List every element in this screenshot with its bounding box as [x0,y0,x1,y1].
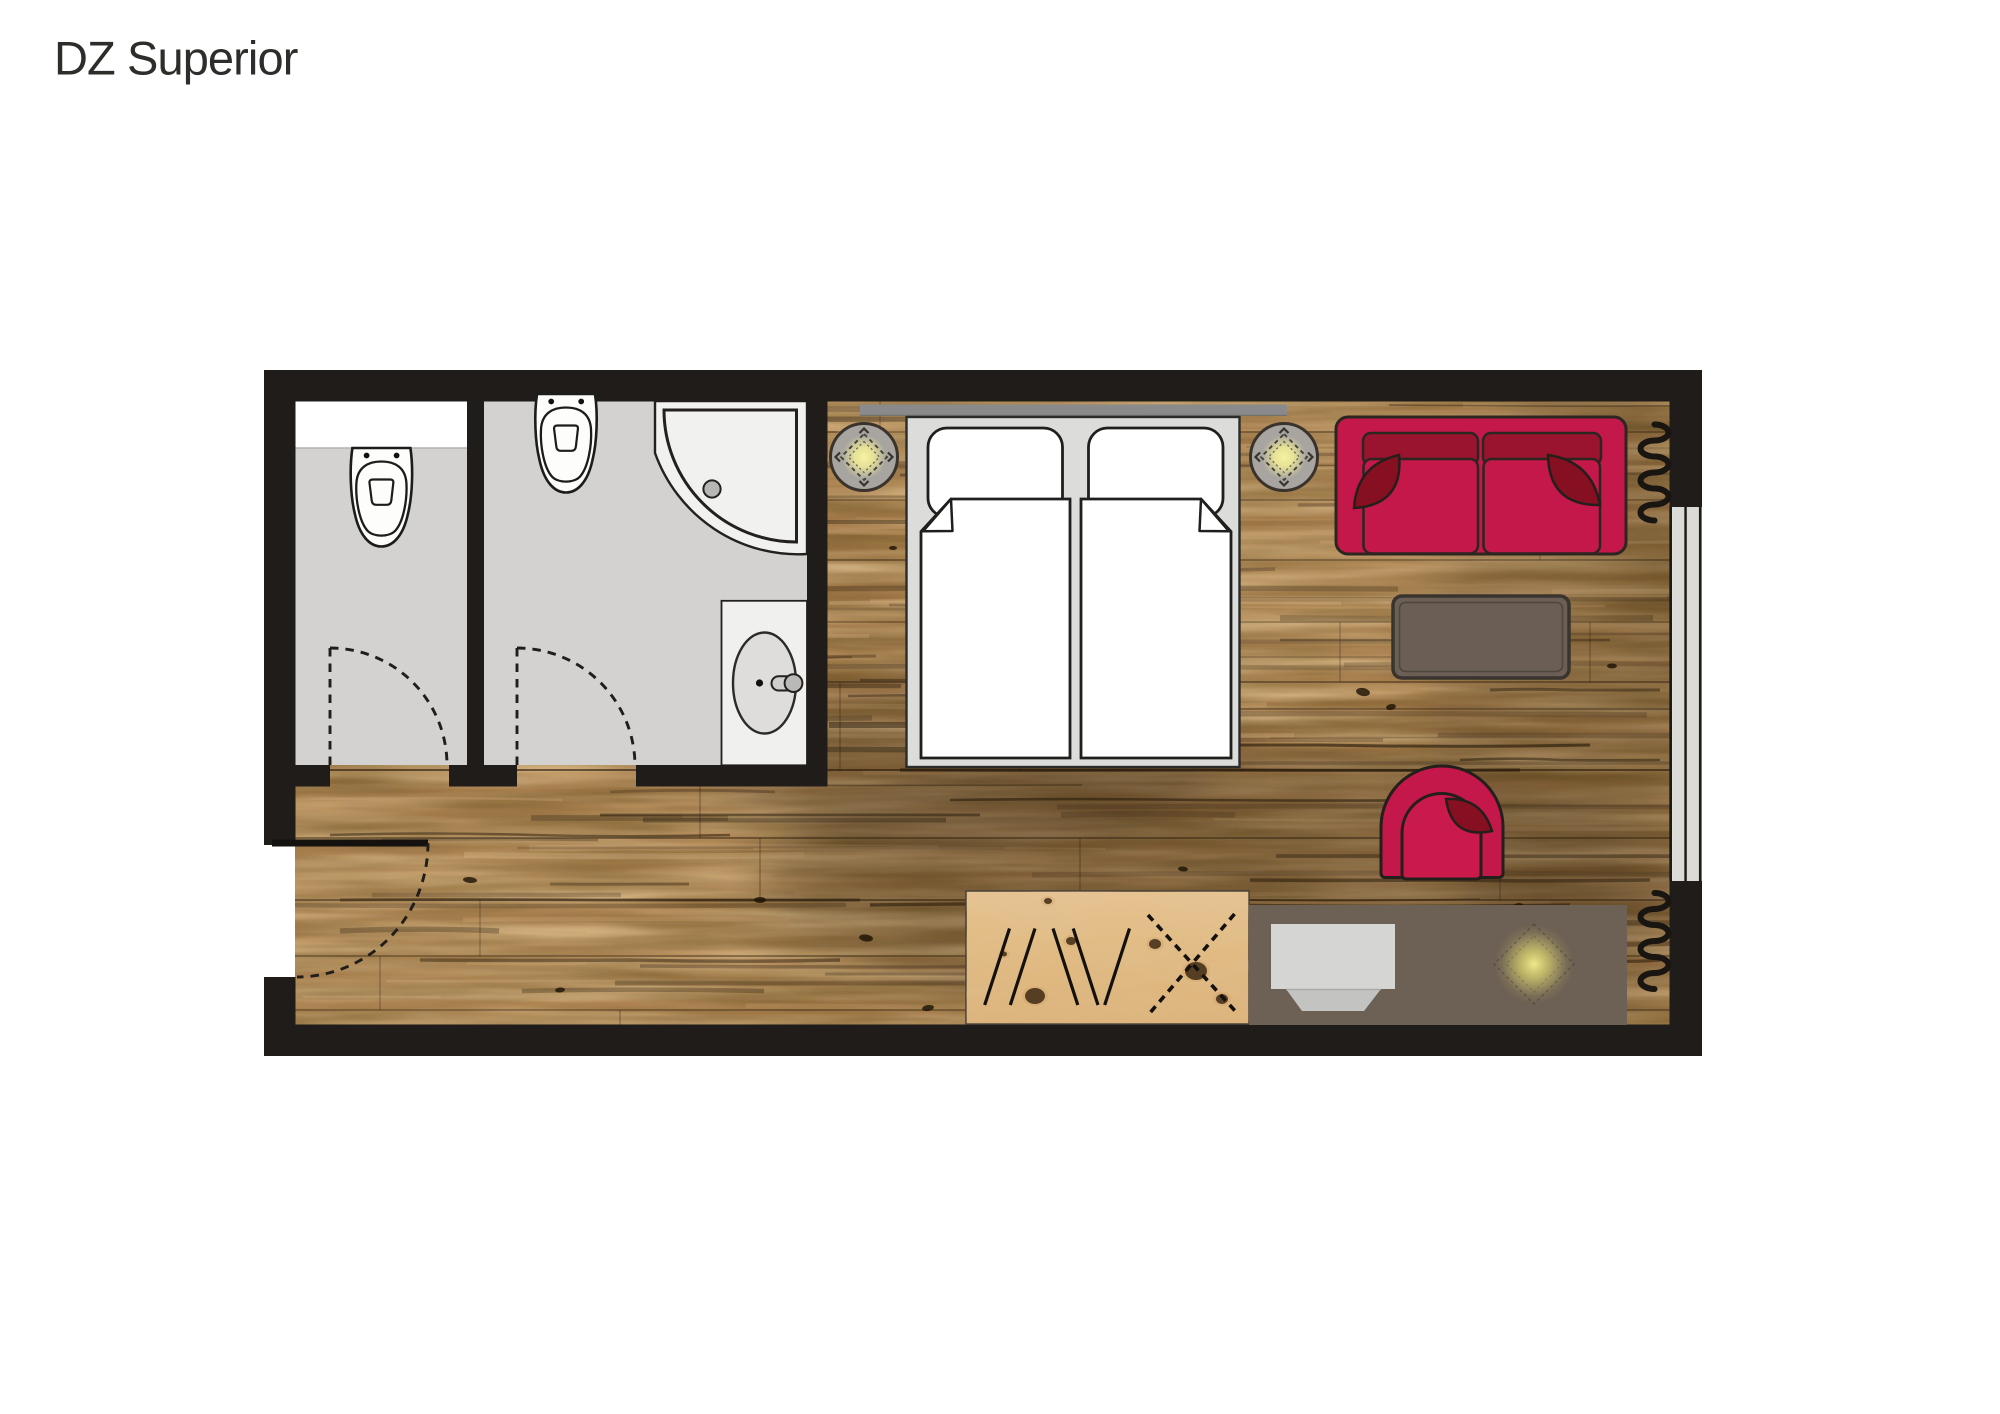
svg-text:DZ Superior: DZ Superior [54,32,298,85]
